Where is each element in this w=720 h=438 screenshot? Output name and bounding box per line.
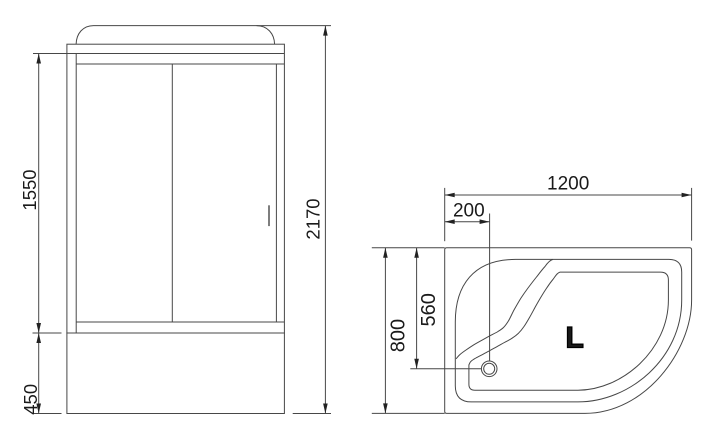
svg-text:L: L (566, 322, 584, 355)
svg-text:1550: 1550 (19, 169, 40, 210)
svg-text:800: 800 (388, 319, 410, 352)
svg-text:560: 560 (418, 293, 440, 326)
svg-text:200: 200 (453, 201, 485, 222)
svg-text:1200: 1200 (547, 174, 589, 195)
svg-text:2170: 2170 (303, 198, 324, 239)
svg-text:450: 450 (20, 384, 41, 415)
